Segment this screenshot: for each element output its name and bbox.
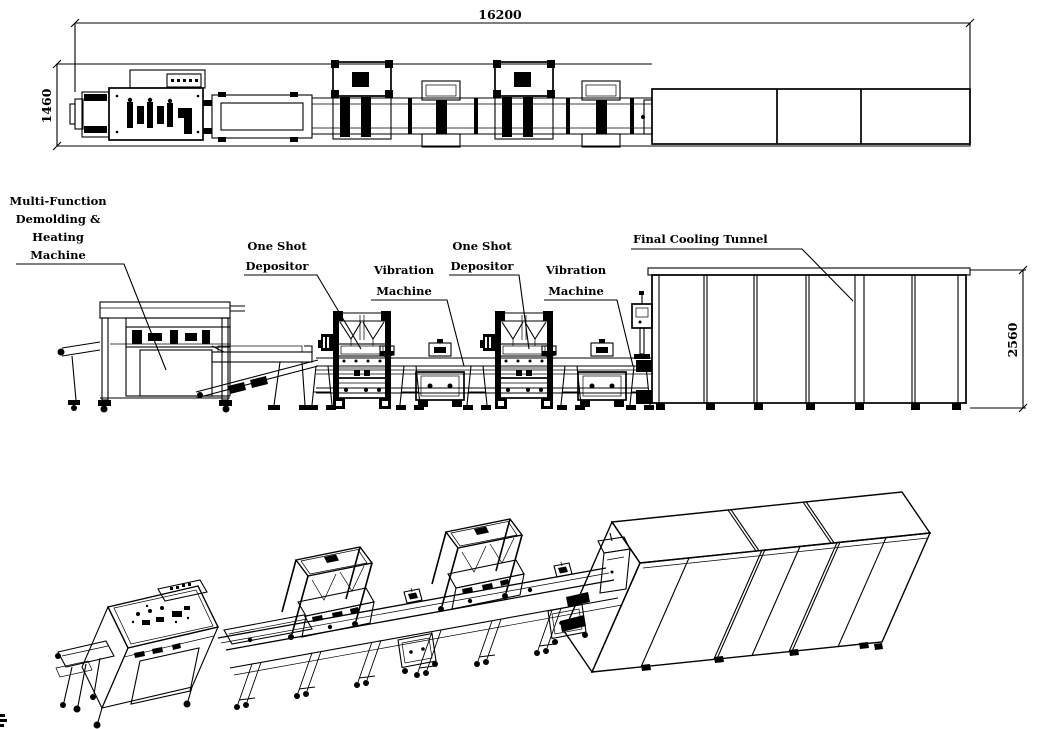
label-demolding-3: Heating [32, 230, 84, 244]
label-vibration1-2: Machine [376, 284, 432, 298]
front-one-shot-depositor-2 [480, 311, 553, 409]
front-view: Multi-Function Demolding & Heating Machi… [9, 194, 1027, 413]
plan-one-shot-depositor-1 [331, 60, 393, 139]
plan-one-shot-depositor-2 [493, 60, 555, 139]
callout-vibration-2: Vibration Machine [544, 263, 633, 366]
label-vibration2-1: Vibration [545, 263, 607, 277]
dimension-tunnel-height-text: 2560 [1005, 322, 1020, 357]
iso-belt-clamp-1 [404, 588, 422, 603]
dimension-line-width-text: 1460 [39, 88, 54, 123]
plan-transfer-conveyor [212, 92, 312, 142]
production-line-drawing: 16200 1460 [0, 0, 1040, 729]
leader-depositor-1 [244, 275, 361, 349]
leader-vibration-2 [544, 300, 633, 366]
corner-artifact [0, 714, 7, 727]
front-demolding-machine [58, 302, 246, 413]
dimension-overall-length-text: 16200 [478, 7, 522, 22]
isometric-view [55, 492, 930, 729]
dimension-tunnel-height: 2560 [970, 266, 1027, 412]
label-demolding-1: Multi-Function [9, 194, 107, 208]
callout-cooling-tunnel: Final Cooling Tunnel [631, 232, 853, 301]
iso-one-shot-depositor-2 [432, 519, 524, 612]
label-vibration2-2: Machine [548, 284, 604, 298]
iso-demolding-machine [55, 580, 218, 729]
label-depositor2-2: Depositor [451, 259, 515, 273]
callout-depositor-1: One Shot Depositor [244, 239, 361, 349]
front-one-shot-depositor-1 [318, 311, 391, 409]
front-transfer-conveyor [196, 346, 318, 410]
iso-cooling-tunnel [564, 492, 930, 672]
leader-demolding [16, 264, 166, 370]
iso-belt-clamp-2 [554, 562, 572, 577]
label-cooling-tunnel: Final Cooling Tunnel [633, 232, 768, 246]
label-depositor1-2: Depositor [246, 259, 310, 273]
dimension-line-width: 1460 [39, 60, 61, 150]
front-cooling-tunnel [648, 268, 970, 410]
front-vibration-machine-1 [380, 339, 464, 407]
plan-cooling-tunnel [652, 89, 970, 144]
drawing-sheet: 16200 1460 [0, 0, 1040, 729]
label-demolding-4: Machine [30, 248, 86, 262]
label-depositor2-1: One Shot [452, 239, 512, 253]
top-view: 16200 1460 [39, 7, 974, 150]
label-demolding-2: Demolding & [16, 212, 101, 226]
front-control-panel [632, 291, 652, 404]
plan-vibration-machine-2 [582, 81, 620, 147]
front-main-conveyor [308, 358, 654, 410]
label-depositor1-1: One Shot [247, 239, 307, 253]
plan-demolding-machine [70, 70, 212, 140]
front-vibration-machine-2 [542, 339, 626, 407]
iso-conveyor [218, 568, 622, 710]
label-vibration1-1: Vibration [373, 263, 435, 277]
plan-vibration-machine-1 [422, 81, 460, 147]
